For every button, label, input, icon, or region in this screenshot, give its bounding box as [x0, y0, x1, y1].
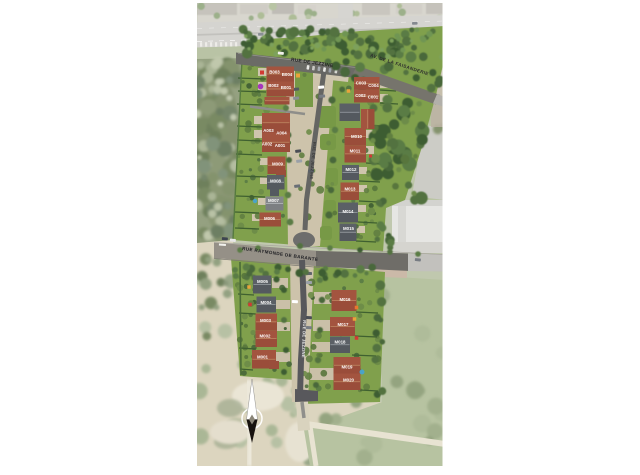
svg-text:C004: C004	[368, 83, 379, 88]
svg-text:M008: M008	[270, 179, 282, 184]
svg-text:M006: M006	[264, 216, 276, 221]
svg-text:M014: M014	[343, 209, 355, 214]
svg-text:M011: M011	[350, 149, 361, 154]
svg-text:M018: M018	[335, 340, 347, 345]
svg-text:M007: M007	[268, 198, 280, 203]
svg-text:M004: M004	[261, 300, 273, 305]
svg-text:M016: M016	[340, 297, 352, 302]
svg-text:B001: B001	[281, 85, 292, 90]
svg-text:C002: C002	[355, 93, 366, 98]
svg-text:M002: M002	[260, 334, 272, 339]
svg-text:A004: A004	[276, 131, 287, 136]
svg-text:M015: M015	[343, 226, 355, 231]
svg-text:M003: M003	[260, 318, 272, 323]
svg-text:A002: A002	[262, 142, 273, 147]
svg-text:C001: C001	[368, 95, 379, 100]
svg-text:A001: A001	[275, 143, 286, 148]
svg-text:M001: M001	[257, 355, 269, 360]
svg-text:M005: M005	[257, 279, 269, 284]
svg-text:B003: B003	[269, 70, 280, 75]
svg-text:M020: M020	[343, 378, 355, 383]
svg-text:C003: C003	[356, 81, 367, 86]
svg-text:M013: M013	[345, 187, 357, 192]
svg-text:M009: M009	[272, 162, 284, 167]
svg-text:M017: M017	[338, 322, 350, 327]
svg-text:A003: A003	[263, 128, 274, 133]
svg-text:M019: M019	[342, 365, 354, 370]
svg-text:B004: B004	[282, 72, 293, 77]
svg-text:M012: M012	[346, 167, 358, 172]
svg-text:B002: B002	[268, 83, 279, 88]
svg-text:M010: M010	[351, 134, 363, 139]
